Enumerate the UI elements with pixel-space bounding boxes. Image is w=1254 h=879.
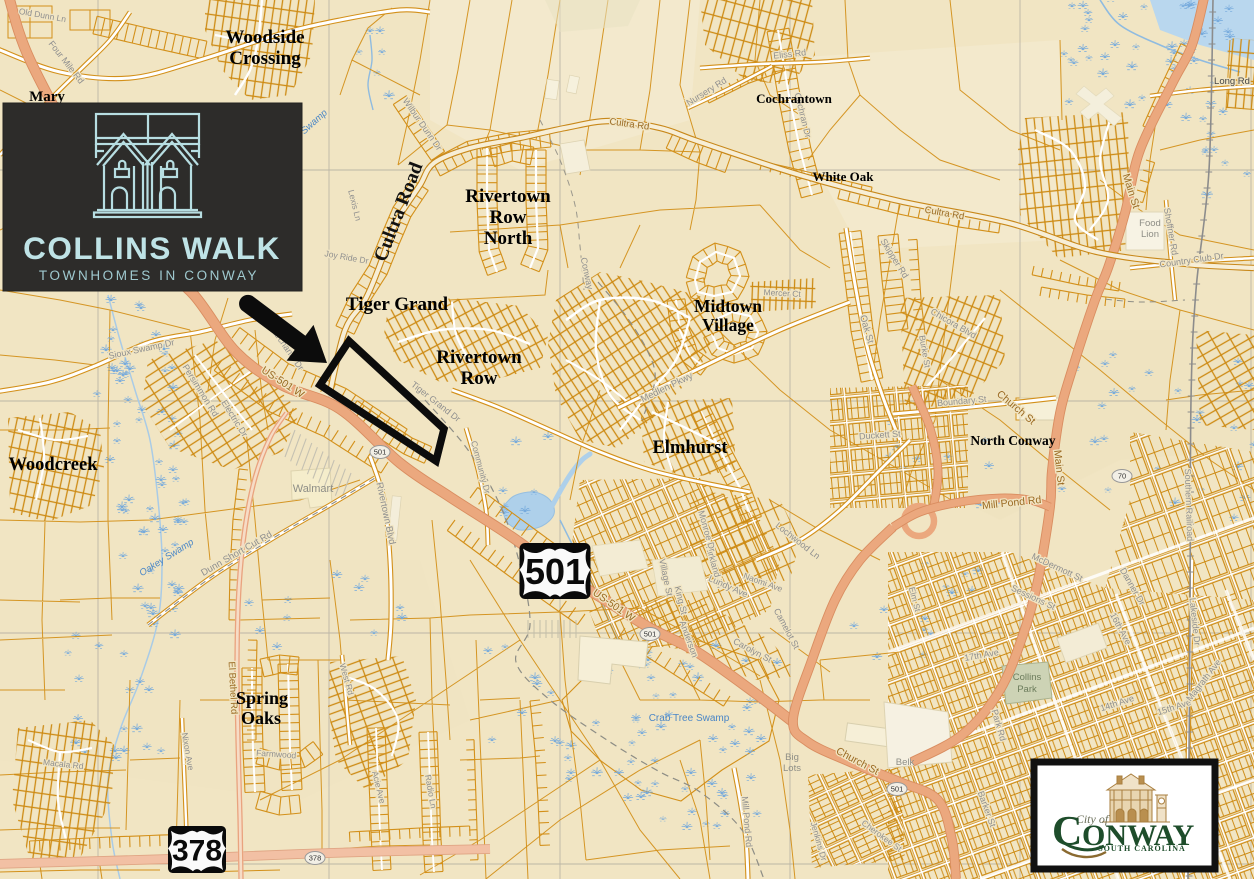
svg-text:Cochrantown: Cochrantown	[756, 91, 833, 106]
svg-text:Walmart: Walmart	[293, 483, 334, 495]
svg-text:North: North	[484, 228, 533, 249]
svg-text:Belk: Belk	[896, 757, 915, 768]
svg-text:501: 501	[374, 448, 387, 457]
svg-text:COLLINS WALK: COLLINS WALK	[23, 230, 281, 266]
svg-text:Park: Park	[1017, 684, 1037, 695]
svg-text:North Conway: North Conway	[970, 433, 1055, 448]
svg-text:501: 501	[644, 630, 657, 639]
svg-text:Mercer Ct: Mercer Ct	[763, 287, 801, 299]
svg-text:Midtown: Midtown	[694, 296, 762, 316]
svg-text:70: 70	[1118, 472, 1126, 481]
svg-text:378: 378	[309, 854, 322, 863]
svg-text:Elmhurst: Elmhurst	[652, 438, 728, 458]
svg-text:378: 378	[172, 834, 222, 867]
svg-text:SOUTH CAROLINA: SOUTH CAROLINA	[1098, 844, 1186, 853]
svg-text:Tiger Grand: Tiger Grand	[346, 294, 449, 315]
svg-text:Collins: Collins	[1013, 672, 1042, 683]
svg-text:Long Rd: Long Rd	[1214, 76, 1250, 87]
svg-text:Woodside: Woodside	[225, 27, 304, 48]
svg-text:Big: Big	[785, 752, 799, 763]
svg-text:White Oak: White Oak	[812, 169, 874, 184]
svg-text:Row: Row	[490, 207, 527, 228]
svg-text:Crab Tree Swamp: Crab Tree Swamp	[649, 713, 730, 724]
svg-text:Spring: Spring	[236, 688, 288, 708]
svg-text:Lots: Lots	[783, 763, 801, 774]
svg-text:Rivertown: Rivertown	[465, 186, 551, 207]
svg-text:Crossing: Crossing	[229, 48, 301, 69]
svg-text:Oaks: Oaks	[241, 708, 281, 728]
svg-text:TOWNHOMES IN CONWAY: TOWNHOMES IN CONWAY	[39, 268, 259, 283]
svg-text:Lion: Lion	[1141, 229, 1159, 240]
svg-text:501: 501	[525, 551, 585, 592]
svg-text:Woodcreek: Woodcreek	[8, 455, 98, 475]
svg-text:Row: Row	[461, 368, 498, 389]
svg-text:501: 501	[891, 785, 904, 794]
svg-text:Rivertown: Rivertown	[436, 347, 522, 368]
svg-text:Village: Village	[702, 315, 754, 335]
svg-text:Food: Food	[1139, 218, 1161, 229]
